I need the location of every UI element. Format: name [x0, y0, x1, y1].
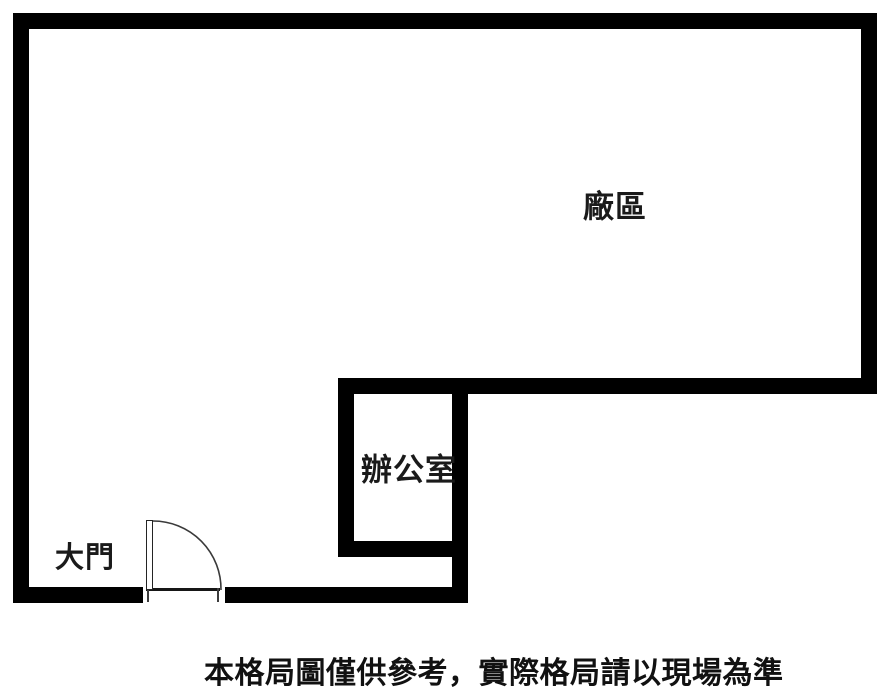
wall-bottom-left	[13, 587, 143, 603]
wall-bottom-right	[225, 587, 468, 603]
factory-area-label: 廠區	[583, 182, 647, 227]
office-wall-right	[452, 378, 468, 603]
office-label: 辦公室	[361, 445, 457, 490]
floorplan-canvas: 廠區 辦公室 大門 本格局圖僅供參考，實際格局請以現場為準	[0, 0, 889, 697]
wall-left	[13, 13, 29, 603]
wall-top	[13, 13, 877, 29]
door-swing-arc-icon	[150, 516, 226, 594]
disclaimer-caption: 本格局圖僅供參考，實際格局請以現場為準	[204, 648, 784, 692]
office-wall-bottom	[338, 541, 468, 557]
wall-right	[861, 13, 877, 394]
main-door-label: 大門	[55, 534, 115, 576]
door-jamb-left	[147, 588, 149, 602]
office-wall-left	[338, 378, 354, 557]
wall-factory-bottom	[338, 378, 877, 394]
